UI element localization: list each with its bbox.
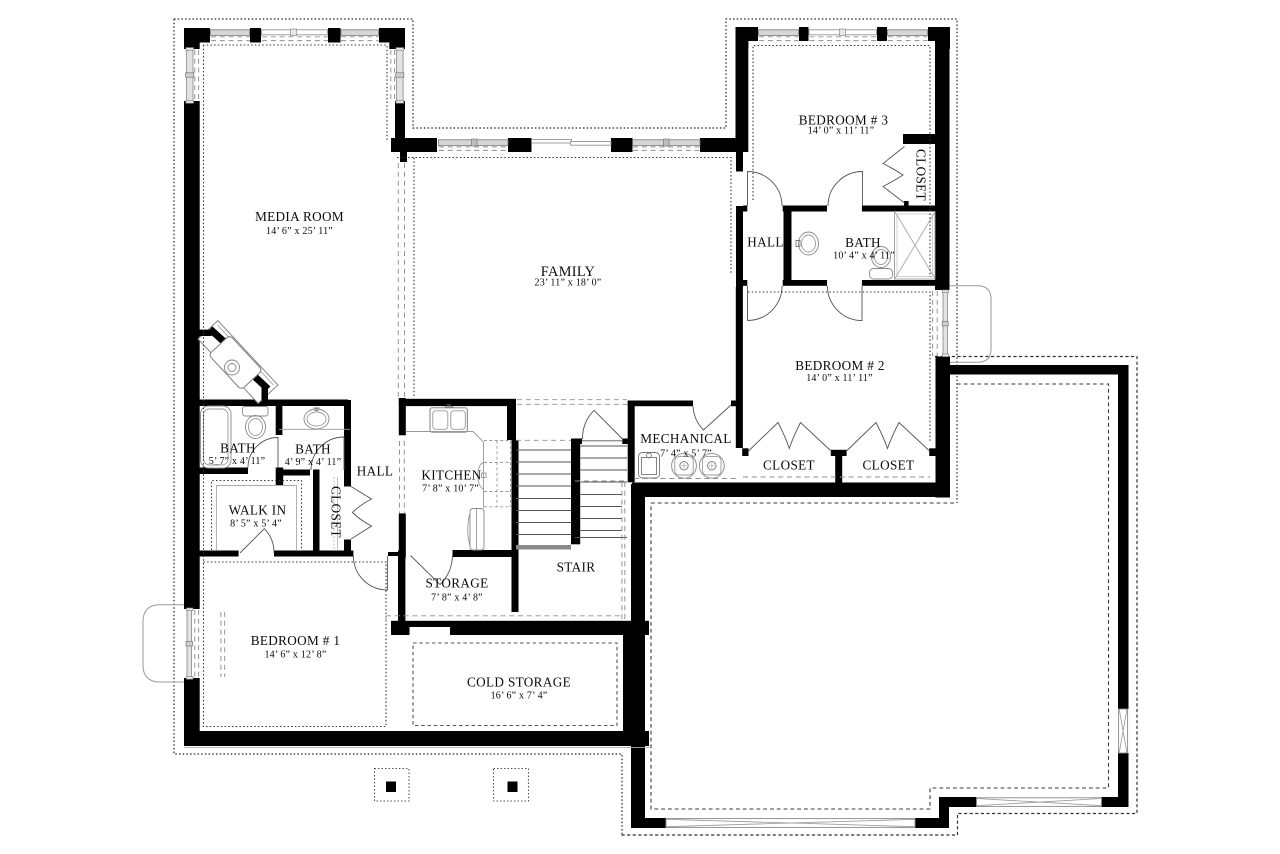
svg-text:14’ 0” x 11’ 11”: 14’ 0” x 11’ 11” (806, 373, 873, 384)
svg-text:23’ 11” x 18’ 0”: 23’ 11” x 18’ 0” (535, 278, 602, 289)
svg-text:MEDIA ROOM: MEDIA ROOM (255, 209, 344, 224)
svg-text:16’ 6” x 7’ 4”: 16’ 6” x 7’ 4” (491, 691, 548, 702)
svg-text:10’ 4” x 4’ 11”: 10’ 4” x 4’ 11” (833, 251, 895, 262)
svg-text:7’ 8” x 10’ 7”: 7’ 8” x 10’ 7” (422, 484, 479, 495)
svg-text:7’ 4” x 5’ 7”: 7’ 4” x 5’ 7” (660, 449, 712, 460)
svg-text:BEDROOM # 1: BEDROOM # 1 (251, 633, 341, 648)
svg-text:BATH: BATH (295, 442, 331, 457)
svg-text:14’ 6” x 25’ 11”: 14’ 6” x 25’ 11” (266, 226, 333, 237)
svg-text:CLOSET: CLOSET (863, 458, 915, 473)
svg-text:HALL: HALL (357, 464, 394, 479)
svg-text:KITCHEN: KITCHEN (421, 468, 481, 483)
svg-text:BATH: BATH (845, 235, 881, 250)
svg-text:HALL: HALL (747, 235, 784, 250)
svg-text:8’ 5” x 5’ 4”: 8’ 5” x 5’ 4” (230, 519, 282, 530)
svg-text:CLOSET: CLOSET (763, 458, 815, 473)
svg-text:COLD STORAGE: COLD STORAGE (467, 675, 571, 690)
svg-text:STORAGE: STORAGE (425, 576, 488, 591)
svg-text:14’ 6” x 12’ 8”: 14’ 6” x 12’ 8” (264, 650, 326, 661)
svg-text:MECHANICAL: MECHANICAL (640, 431, 731, 446)
svg-text:4’ 9” x 4’ 11”: 4’ 9” x 4’ 11” (285, 457, 341, 468)
svg-text:BATH: BATH (220, 441, 256, 456)
svg-text:STAIR: STAIR (557, 560, 596, 575)
svg-text:WALK IN: WALK IN (229, 503, 287, 518)
svg-text:BEDROOM # 2: BEDROOM # 2 (795, 358, 885, 373)
svg-text:CLOSET: CLOSET (329, 486, 344, 538)
svg-text:14’ 0” x 11’ 11”: 14’ 0” x 11’ 11” (808, 126, 875, 137)
svg-text:7’ 8” x 4’ 8”: 7’ 8” x 4’ 8” (431, 593, 483, 604)
svg-text:5’ 7” x 4’ 11”: 5’ 7” x 4’ 11” (209, 456, 265, 467)
svg-text:CLOSET: CLOSET (914, 149, 929, 201)
